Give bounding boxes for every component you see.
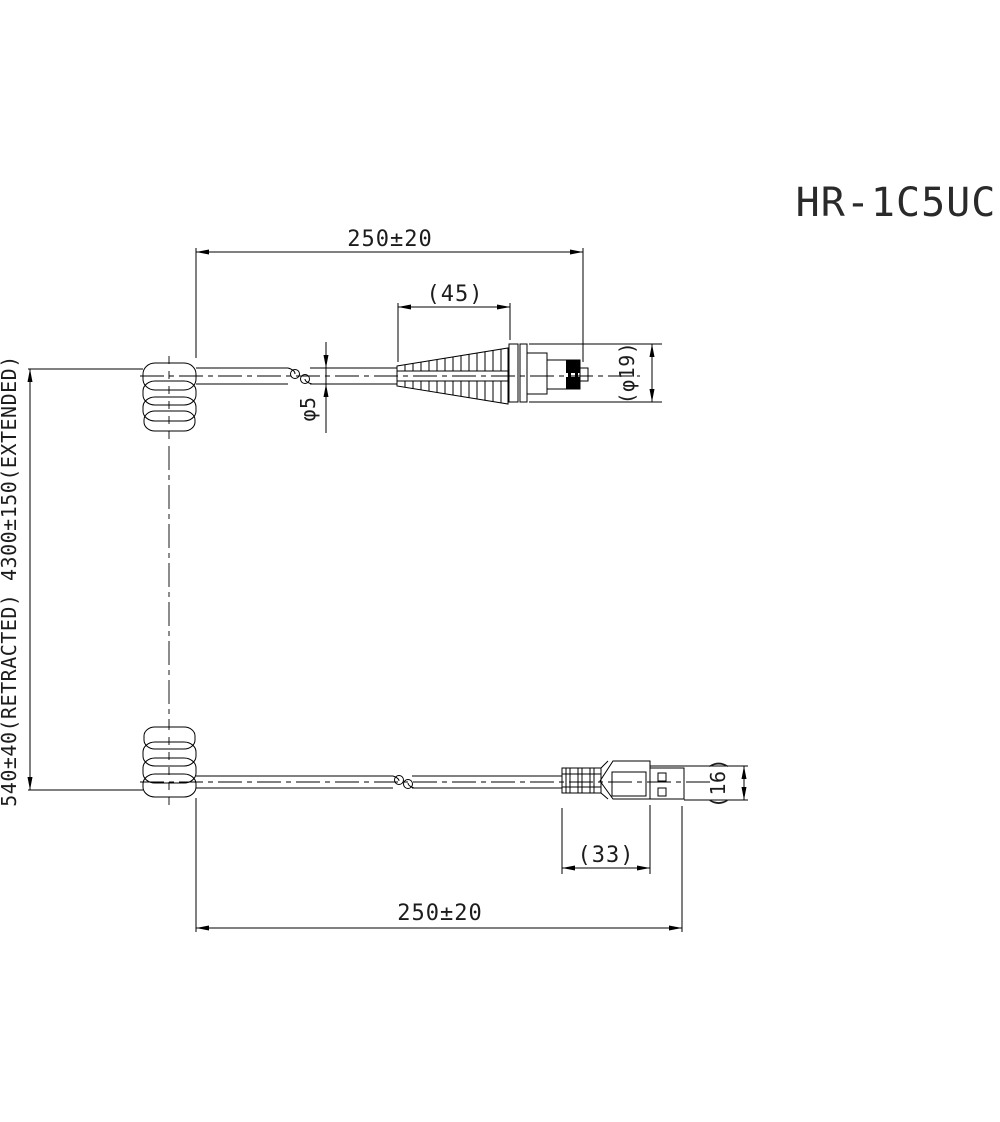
connector-diameter-label: (φ19) xyxy=(615,342,639,405)
cable-drawing-canvas: HR-1C5UC xyxy=(0,0,1000,1122)
coil-length-label: 540±40(RETRACTED) 4300±150(EXTENDED) xyxy=(0,355,21,806)
usb-connector xyxy=(562,761,684,799)
cable-diameter-label: φ5 xyxy=(296,396,320,421)
dimension-connector-diameter: (φ19) xyxy=(529,342,662,405)
usb-width-label: (16) xyxy=(706,758,730,808)
dimension-usb-width: (16) xyxy=(650,758,748,808)
bottom-coil xyxy=(143,727,196,797)
top-length-label: 250±20 xyxy=(347,227,432,252)
top-coil xyxy=(143,363,196,431)
technical-drawing-page: HR-1C5UC xyxy=(0,0,1000,1122)
dimension-top-length: 250±20 xyxy=(196,227,583,362)
usb-length-label: (33) xyxy=(578,843,635,868)
centerlines xyxy=(140,356,712,812)
dimension-cable-diameter: φ5 xyxy=(296,342,329,433)
boot-length-label: (45) xyxy=(427,282,484,307)
dimension-usb-length: (33) xyxy=(562,805,650,874)
dimension-coil-length: 540±40(RETRACTED) 4300±150(EXTENDED) xyxy=(0,355,143,806)
drawing-title: HR-1C5UC xyxy=(796,180,997,226)
circular-connector xyxy=(509,344,588,402)
bottom-length-label: 250±20 xyxy=(397,901,482,926)
